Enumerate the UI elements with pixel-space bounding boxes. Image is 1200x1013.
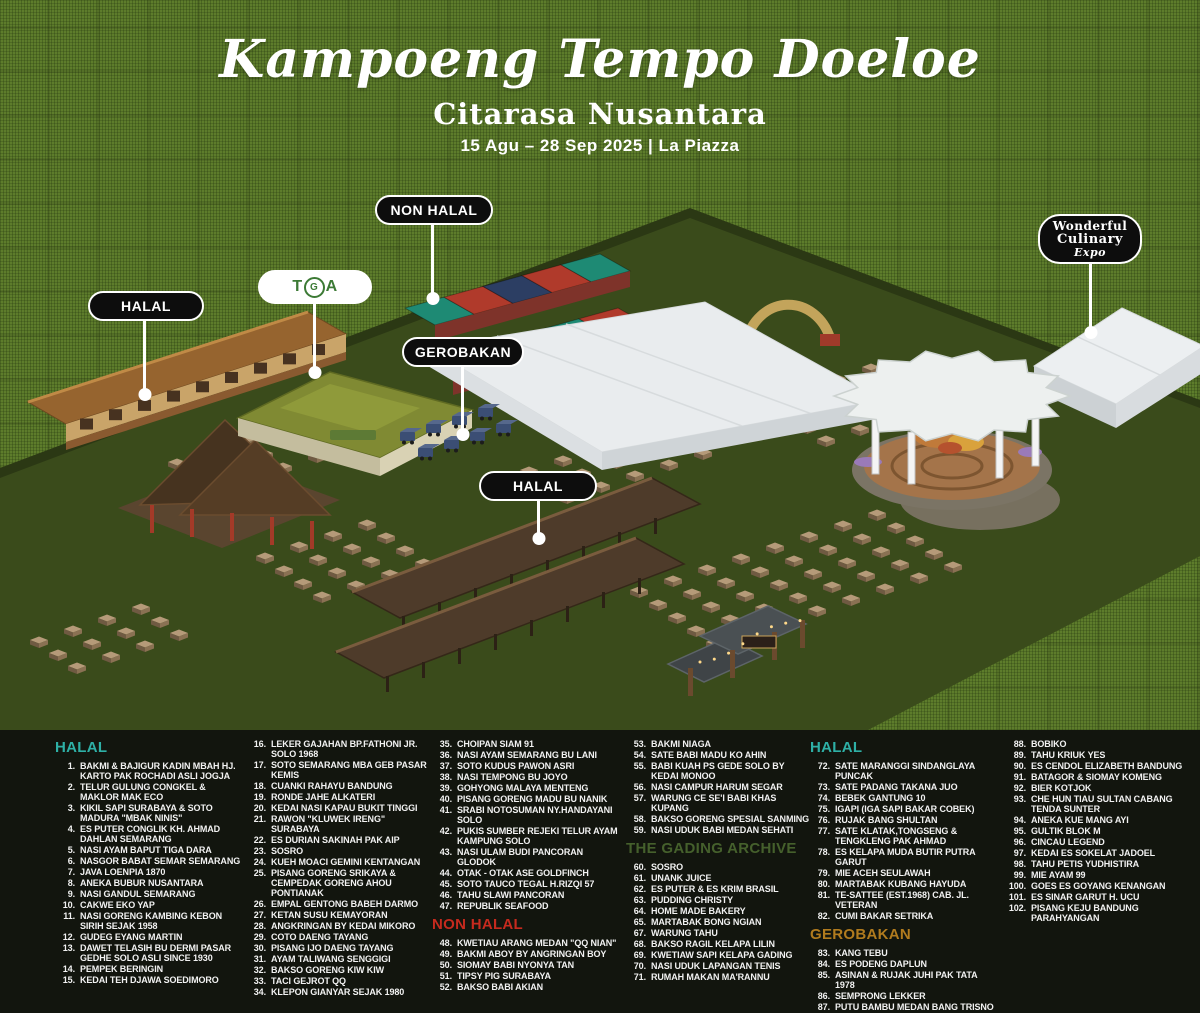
vendor-item: 2.TELUR GULUNG CONGKEL & MAKLOR MAK ECO <box>55 782 241 802</box>
vendor-item: 73.SATE PADANG TAKANA JUO <box>810 782 996 792</box>
vendor-item: 93.CHE HUN TIAU SULTAN CABANG TENDA SUNT… <box>1006 794 1192 814</box>
vendor-item: 4.ES PUTER CONGLIK KH. AHMAD DAHLAN SEMA… <box>55 824 241 844</box>
vendor-item: 62.ES PUTER & ES KRIM BRASIL <box>626 884 812 894</box>
vendor-item: 100.GOES ES GOYANG KENANGAN <box>1006 881 1192 891</box>
section-header: THE GADING ARCHIVE <box>626 840 812 857</box>
vendor-item: 51.TIPSY PIG SURABAYA <box>432 971 618 981</box>
vendor-item: 53.BAKMI NIAGA <box>626 739 812 749</box>
wce-line1: Wonderful <box>1053 220 1128 233</box>
wce-stem <box>1089 262 1092 328</box>
section-header: NON HALAL <box>432 916 618 933</box>
vendor-item: 43.NASI ULAM BUDI PANCORAN GLODOK <box>432 847 618 867</box>
vendor-item: 17.SOTO SEMARANG MBA GEB PASAR KEMIS <box>246 760 432 780</box>
vendor-item: 94.ANEKA KUE MANG AYI <box>1006 815 1192 825</box>
vendor-item: 68.BAKSO RAGIL KELAPA LILIN <box>626 939 812 949</box>
vendor-item: 52.BAKSO BABI AKIAN <box>432 982 618 992</box>
vendor-item: 20.KEDAI NASI KAPAU BUKIT TINGGI <box>246 803 432 813</box>
non-halal-stem <box>431 224 434 294</box>
gerobakan-pill: GEROBAKAN <box>402 337 524 367</box>
vendor-item: 40.PISANG GORENG MADU BU NANIK <box>432 794 618 804</box>
vendor-item: 56.NASI CAMPUR HARUM SEGAR <box>626 782 812 792</box>
vendor-item: 65.MARTABAK BONG NGIAN <box>626 917 812 927</box>
halal-bottom-pill: HALAL <box>479 471 597 501</box>
vendor-item: 21.RAWON "KLUWEK IRENG" SURABAYA <box>246 814 432 834</box>
section-header: HALAL <box>810 739 996 756</box>
vendor-item: 6.NASGOR BABAT SEMAR SEMARANG <box>55 856 241 866</box>
vendor-item: 101.ES SINAR GARUT H. UCU <box>1006 892 1192 902</box>
vendor-item: 44.OTAK - OTAK ASE GOLDFINCH <box>432 868 618 878</box>
section-header: GEROBAKAN <box>810 926 996 943</box>
vendor-item: 78.ES KELAPA MUDA BUTIR PUTRA GARUT <box>810 847 996 867</box>
vendor-item: 42.PUKIS SUMBER REJEKI TELUR AYAM KAMPUN… <box>432 826 618 846</box>
vendor-item: 98.TAHU PETIS YUDHISTIRA <box>1006 859 1192 869</box>
vendor-item: 97.KEDAI ES SOKELAT JADOEL <box>1006 848 1192 858</box>
vendor-item: 14.PEMPEK BERINGIN <box>55 964 241 974</box>
vendor-item: 3.KIKIL SAPI SURABAYA & SOTO MADURA "MBA… <box>55 803 241 823</box>
vendor-item: 45.SOTO TAUCO TEGAL H.RIZQI 57 <box>432 879 618 889</box>
vendor-item: 92.BIER KOTJOK <box>1006 783 1192 793</box>
event-subtitle: Citarasa Nusantara <box>0 96 1200 132</box>
vendor-item: 80.MARTABAK KUBANG HAYUDA <box>810 879 996 889</box>
vendor-legend: HALAL1.BAKMI & BAJIGUR KADIN MBAH HJ. KA… <box>0 730 1200 1000</box>
gerobakan-label: GEROBAKAN <box>415 344 511 360</box>
vendor-item: 69.KWETIAW SAPI KELAPA GADING <box>626 950 812 960</box>
vendor-item: 70.NASI UDUK LAPANGAN TENIS <box>626 961 812 971</box>
vendor-item: 75.IGAPI (IGA SAPI BAKAR COBEK) <box>810 804 996 814</box>
vendor-item: 16.LEKER GAJAHAN BP.FATHONI JR. SOLO 196… <box>246 739 432 759</box>
vendor-item: 49.BAKMI ABOY BY ANGRINGAN BOY <box>432 949 618 959</box>
vendor-item: 74.BEBEK GANTUNG 10 <box>810 793 996 803</box>
title-block: Kampoeng Tempo Doeloe Citarasa Nusantara… <box>0 30 1200 156</box>
non-halal-pill: NON HALAL <box>375 195 493 225</box>
vendor-item: 26.EMPAL GENTONG BABEH DARMO <box>246 899 432 909</box>
vendor-item: 11.NASI GORENG KAMBING KEBON SIRIH SEJAK… <box>55 911 241 931</box>
vendor-item: 9.NASI GANDUL SEMARANG <box>55 889 241 899</box>
vendor-item: 10.CAKWE EKO YAP <box>55 900 241 910</box>
vendor-item: 47.REPUBLIK SEAFOOD <box>432 901 618 911</box>
vendor-item: 77.SATE KLATAK,TONGSENG & TENGKLENG PAK … <box>810 826 996 846</box>
wonderful-culinary-expo-logo: Wonderful Culinary Expo <box>1038 214 1142 264</box>
wce-line2: Culinary <box>1057 233 1123 246</box>
vendor-item: 1.BAKMI & BAJIGUR KADIN MBAH HJ. KARTO P… <box>55 761 241 781</box>
halal-left-pill: HALAL <box>88 291 204 321</box>
vendor-item: 59.NASI UDUK BABI MEDAN SEHATI <box>626 825 812 835</box>
vendor-item: 7.JAVA LOENPIA 1870 <box>55 867 241 877</box>
halal-left-stem <box>143 320 146 390</box>
vendor-item: 76.RUJAK BANG SHULTAN <box>810 815 996 825</box>
vendor-item: 25.PISANG GORENG SRIKAYA & CEMPEDAK GORE… <box>246 868 432 898</box>
vendor-item: 36.NASI AYAM SEMARANG BU LANI <box>432 750 618 760</box>
vendor-item: 38.NASI TEMPONG BU JOYO <box>432 772 618 782</box>
vendor-item: 29.COTO DAENG TAYANG <box>246 932 432 942</box>
legend-column-6: 88.BOBIKO89.TAHU KRIUK YES90.ES CENDOL E… <box>1006 739 1192 924</box>
non-halal-label: NON HALAL <box>391 202 478 218</box>
vendor-item: 24.KUEH MOACI GEMINI KENTANGAN <box>246 857 432 867</box>
vendor-item: 12.GUDEG EYANG MARTIN <box>55 932 241 942</box>
event-date-location: 15 Agu – 28 Sep 2025 | La Piazza <box>0 136 1200 156</box>
vendor-item: 15.KEDAI TEH DJAWA SOEDIMORO <box>55 975 241 985</box>
legend-column-3: 35.CHOIPAN SIAM 9136.NASI AYAM SEMARANG … <box>432 739 618 993</box>
legend-column-5: HALAL72.SATE MARANGGI SINDANGLAYA PUNCAK… <box>810 739 996 1013</box>
vendor-item: 27.KETAN SUSU KEMAYORAN <box>246 910 432 920</box>
vendor-item: 22.ES DURIAN SAKINAH PAK AIP <box>246 835 432 845</box>
wce-line3: Expo <box>1074 246 1106 259</box>
vendor-item: 95.GULTIK BLOK M <box>1006 826 1192 836</box>
vendor-item: 88.BOBIKO <box>1006 739 1192 749</box>
vendor-item: 79.MIE ACEH SEULAWAH <box>810 868 996 878</box>
vendor-item: 58.BAKSO GORENG SPESIAL SANMING <box>626 814 812 824</box>
vendor-item: 85.ASINAN & RUJAK JUHI PAK TATA 1978 <box>810 970 996 990</box>
vendor-item: 60.SOSRO <box>626 862 812 872</box>
tga-stem <box>313 304 316 368</box>
vendor-item: 90.ES CENDOL ELIZABETH BANDUNG <box>1006 761 1192 771</box>
vendor-item: 82.CUMI BAKAR SETRIKA <box>810 911 996 921</box>
legend-column-1: HALAL1.BAKMI & BAJIGUR KADIN MBAH HJ. KA… <box>55 739 241 986</box>
vendor-item: 32.BAKSO GORENG KIW KIW <box>246 965 432 975</box>
vendor-item: 33.TACI GEJROT QQ <box>246 976 432 986</box>
vendor-item: 48.KWETIAU ARANG MEDAN "QQ NIAN" <box>432 938 618 948</box>
vendor-item: 13.DAWET TELASIH BU DERMI PASAR GEDHE SO… <box>55 943 241 963</box>
vendor-item: 63.PUDDING CHRISTY <box>626 895 812 905</box>
gerobakan-stem <box>461 366 464 430</box>
vendor-item: 39.GOHYONG MALAYA MENTENG <box>432 783 618 793</box>
vendor-item: 31.AYAM TALIWANG SENGGIGI <box>246 954 432 964</box>
vendor-item: 83.KANG TEBU <box>810 948 996 958</box>
halal-bottom-label: HALAL <box>513 478 563 494</box>
vendor-item: 8.ANEKA BUBUR NUSANTARA <box>55 878 241 888</box>
legend-column-2: 16.LEKER GAJAHAN BP.FATHONI JR. SOLO 196… <box>246 739 432 998</box>
vendor-item: 34.KLEPON GIANYAR SEJAK 1980 <box>246 987 432 997</box>
vendor-item: 35.CHOIPAN SIAM 91 <box>432 739 618 749</box>
vendor-item: 30.PISANG IJO DAENG TAYANG <box>246 943 432 953</box>
section-header: HALAL <box>55 739 241 756</box>
vendor-item: 91.BATAGOR & SIOMAY KOMENG <box>1006 772 1192 782</box>
vendor-item: 61.UNANK JUICE <box>626 873 812 883</box>
vendor-item: 84.ES PODENG DAPLUN <box>810 959 996 969</box>
vendor-item: 19.RONDE JAHE ALKATERI <box>246 792 432 802</box>
tga-logo-pill: TGA <box>258 270 372 304</box>
event-title: Kampoeng Tempo Doeloe <box>0 30 1200 90</box>
vendor-item: 99.MIE AYAM 99 <box>1006 870 1192 880</box>
vendor-item: 46.TAHU SLAWI PANCORAN <box>432 890 618 900</box>
vendor-item: 37.SOTO KUDUS PAWON ASRI <box>432 761 618 771</box>
vendor-item: 50.SIOMAY BABI NYONYA TAN <box>432 960 618 970</box>
vendor-item: 41.SRABI NOTOSUMAN NY.HANDAYANI SOLO <box>432 805 618 825</box>
vendor-item: 81.TE-SATTEE (EST.1968) CAB. JL. VETERAN <box>810 890 996 910</box>
vendor-item: 87.PUTU BAMBU MEDAN BANG TRISNO <box>810 1002 996 1012</box>
vendor-item: 67.WARUNG TAHU <box>626 928 812 938</box>
vendor-item: 23.SOSRO <box>246 846 432 856</box>
tga-logo: TGA <box>292 277 337 298</box>
vendor-item: 102.PISANG KEJU BANDUNG PARAHYANGAN <box>1006 903 1192 923</box>
vendor-item: 71.RUMAH MAKAN MA'RANNU <box>626 972 812 982</box>
vendor-item: 57.WARUNG CE SE'I BABI KHAS KUPANG <box>626 793 812 813</box>
vendor-item: 18.CUANKI RAHAYU BANDUNG <box>246 781 432 791</box>
vendor-item: 72.SATE MARANGGI SINDANGLAYA PUNCAK <box>810 761 996 781</box>
vendor-item: 5.NASI AYAM BAPUT TIGA DARA <box>55 845 241 855</box>
halal-left-label: HALAL <box>121 298 171 314</box>
vendor-item: 54.SATE BABI MADU KO AHIN <box>626 750 812 760</box>
vendor-item: 89.TAHU KRIUK YES <box>1006 750 1192 760</box>
legend-column-4: 53.BAKMI NIAGA54.SATE BABI MADU KO AHIN5… <box>626 739 812 983</box>
vendor-item: 28.ANGKRINGAN BY KEDAI MIKORO <box>246 921 432 931</box>
vendor-item: 64.HOME MADE BAKERY <box>626 906 812 916</box>
vendor-item: 55.BABI KUAH PS GEDE SOLO BY KEDAI MONOO <box>626 761 812 781</box>
vendor-item: 96.CINCAU LEGEND <box>1006 837 1192 847</box>
halal-bottom-stem <box>537 500 540 534</box>
